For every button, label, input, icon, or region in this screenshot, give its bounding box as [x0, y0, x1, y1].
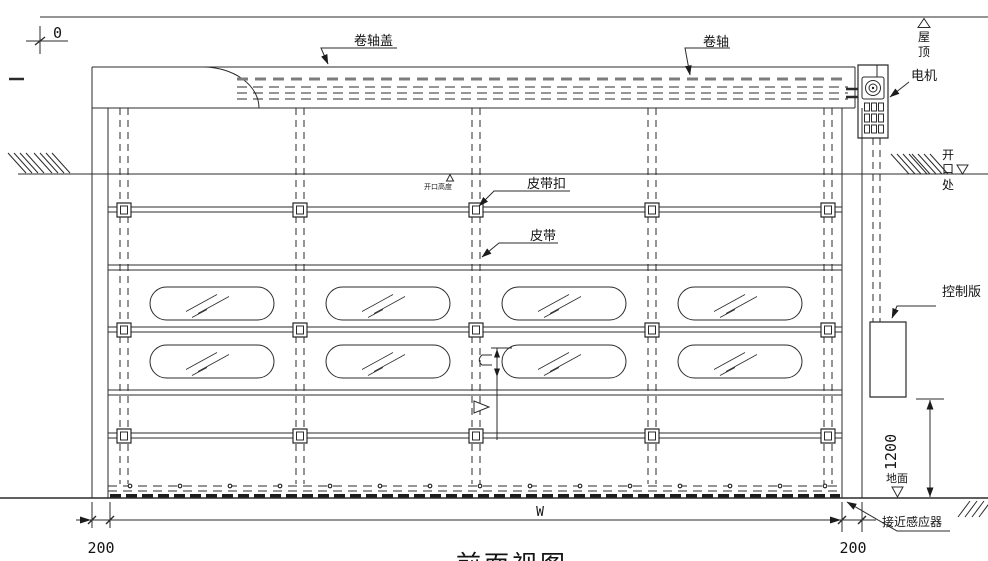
motor-unit: [846, 65, 888, 138]
leader-line: [321, 48, 397, 64]
label-roller-shaft: 卷轴: [685, 34, 730, 75]
control-panel-box: [870, 322, 906, 397]
window: [326, 287, 450, 320]
motor-belt-lines: [873, 138, 880, 322]
housing-cover-arc: [203, 67, 259, 108]
roof-char-2: 顶: [918, 45, 930, 59]
opening-height-text: 开口高度: [424, 182, 452, 191]
window: [326, 345, 450, 378]
label-opening: 开 口 处: [942, 148, 968, 192]
datum-zero-text: 0: [53, 24, 62, 42]
right-frame-column: [842, 108, 862, 498]
label-motor: 电机: [890, 69, 937, 97]
opening-height-triangle: [447, 175, 454, 182]
leader-line: [892, 306, 936, 318]
ground-text: 地面: [886, 472, 908, 485]
dim-1200-text: 1200: [882, 434, 900, 470]
roof-char-1: 屋: [918, 30, 930, 44]
belt-clip-mark: [479, 355, 492, 365]
drawing-canvas: 0: [0, 0, 988, 561]
leader-line: [890, 82, 909, 97]
wall-hatch-right: [891, 154, 948, 174]
view-caption: 前面视图: [456, 550, 568, 561]
motor-text: 电机: [911, 69, 937, 84]
leader-line: [685, 48, 730, 75]
roof-level-triangle: [918, 19, 930, 28]
window: [502, 287, 626, 320]
belt-buckle-text: 皮带扣: [527, 177, 566, 192]
label-control-panel: 控制版: [892, 285, 981, 318]
ground-level-triangle: [892, 487, 903, 497]
label-roller-cover: 卷轴盖: [321, 33, 397, 64]
opening-char-3: 处: [942, 178, 954, 192]
window: [150, 287, 274, 320]
belt-pointer-mark: [474, 401, 489, 413]
roller-housing: [92, 67, 855, 108]
cad-drawing-rollup-door-front-view: 0: [0, 0, 988, 561]
window: [678, 345, 802, 378]
left-frame-column: [92, 108, 108, 498]
bottom-bar: [108, 484, 840, 496]
dim-left-200-text: 200: [87, 539, 114, 557]
ground-hatch-right: [958, 501, 988, 517]
label-belt-buckle: 皮带扣: [479, 177, 570, 206]
control-panel-text: 控制版: [942, 285, 981, 300]
window: [502, 345, 626, 378]
window: [150, 345, 274, 378]
label-ground: 地面: [886, 472, 908, 497]
belt-text: 皮带: [530, 229, 556, 244]
roller-cover-text: 卷轴盖: [354, 33, 393, 49]
opening-char-2: 口: [942, 162, 954, 176]
leader-line: [479, 191, 570, 206]
dim-right-200-text: 200: [839, 539, 866, 557]
dimension-bottom-chain: 200 W 200: [76, 502, 876, 557]
opening-level-triangle: [957, 165, 968, 174]
dim-width-text: W: [536, 505, 544, 520]
label-belt: 皮带: [482, 229, 558, 257]
datum-zero-marker: 0: [26, 24, 68, 54]
leader-line: [482, 243, 558, 257]
rolled-curtain-dashes: [237, 79, 848, 99]
window: [678, 287, 802, 320]
proximity-sensor-text: 接近感应器: [882, 514, 942, 529]
wall-hatch-left: [8, 153, 70, 173]
label-roof: 屋 顶: [918, 19, 930, 60]
belt-lines: [120, 108, 832, 484]
opening-char-1: 开: [942, 148, 954, 162]
label-opening-height: 开口高度: [424, 175, 454, 192]
